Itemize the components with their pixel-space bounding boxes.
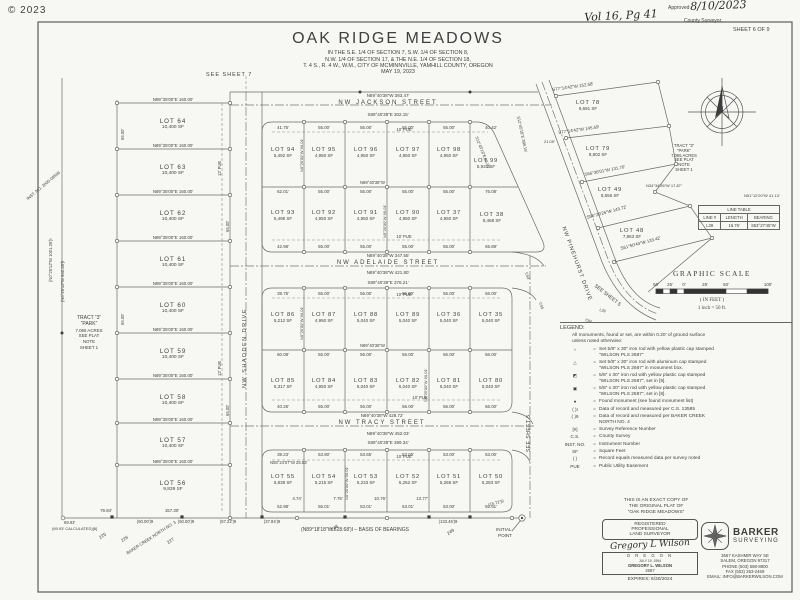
pue-label: 10′ PUE — [382, 293, 426, 298]
bearing-label: N89°35′00″E 160.00′ — [143, 143, 203, 148]
bearing-label: N89°35′00″E 160.00′ — [143, 97, 203, 102]
dim-label: 65.00′ — [226, 221, 231, 232]
street-adelaide: NW ADELAIDE STREET — [328, 260, 448, 267]
bearing-label: S89°40′38″E 376.21′ — [328, 280, 448, 285]
dim-label: 41.75′ — [261, 125, 305, 130]
lot-label: LOT 6210,400 SF — [143, 210, 203, 222]
bearing-label: N89°35′00″E 160.00′ — [143, 373, 203, 378]
street-tracy: NW TRACY STREET — [322, 420, 442, 427]
dim-label: 55.01′ — [302, 504, 346, 509]
dim-label: (50.00′)9 — [127, 520, 163, 525]
dim-label: 79.84′ — [86, 508, 126, 513]
tract-park-label: TRACT “3”“PARK” 7.065 ACRES SEE PLAT NOT… — [58, 316, 120, 351]
dim-label: (57.22′)9 — [208, 520, 248, 525]
lot-label: LOT 798,802 SF — [576, 146, 620, 157]
dim-label: 76.08′ — [469, 189, 513, 194]
exact-copy-note: THIS IS AN EXACT COPY OF THE ORIGINAL PL… — [604, 498, 708, 515]
scale-ratio: 1 inch = 50 ft. — [660, 306, 764, 312]
dim-label: 56.00′ — [469, 291, 513, 296]
dim-label: 55.00′ — [302, 291, 346, 296]
line-table-cell: 16.76′ — [720, 222, 746, 229]
title-block: OAK RIDGE MEADOWS IN THE S.E. 1/4 OF SEC… — [180, 30, 616, 75]
iron-rod-set8-icon: ▣ — [560, 386, 590, 397]
bearing-label: N34°34′26″W 17.87′ — [646, 184, 682, 189]
bearing-label: N89°35′00″E 160.00′ — [143, 281, 203, 286]
line-table-title: LINE TABLE — [699, 206, 779, 213]
dim-label: 13.77′ — [407, 496, 437, 501]
bearing-label: N89°40′38″W 347.55′ — [328, 253, 448, 258]
scale-tick: 100′ — [760, 282, 776, 287]
county-surveyor-label: County Surveyor — [684, 19, 721, 25]
dim-label: 56.00′ — [427, 404, 471, 409]
bearing-label: (N0°25′12″W 942.28′)I — [61, 261, 66, 302]
line-table-header: BEARING — [747, 214, 779, 221]
bearing-label: S89°40′38″E 302.15′ — [328, 112, 448, 117]
dim-label: 55.00′ — [302, 189, 346, 194]
lot-label: LOT 904,950 SF — [386, 210, 430, 221]
handwritten-approval-date: 8/10/2023 — [690, 0, 747, 14]
lot-label: LOT 487,863 SF — [610, 228, 654, 239]
pue-label: 12′ PUE — [218, 361, 223, 376]
lot-label: LOT 865,212 SF — [261, 312, 305, 323]
dim-label: 53.01′ — [344, 504, 388, 509]
iron-rod-aluminum-icon: △ — [560, 360, 590, 371]
dim-label: 56.00′ — [386, 404, 430, 409]
legend-item: ▣=5/8″ x 30″ iron rod with yellow plasti… — [560, 386, 792, 397]
lot-label: LOT 365,040 SF — [427, 312, 471, 323]
lot-label: LOT 6310,400 SF — [143, 164, 203, 176]
lot-label: LOT 974,950 SF — [386, 147, 430, 158]
lot-label: LOT 6410,400 SF — [143, 118, 203, 130]
bearing-label: N89°35′00″E 160.00′ — [143, 327, 203, 332]
dim-label: 56.00′ — [344, 404, 388, 409]
bearing-label: N89°40′38″W 428.72′ — [322, 413, 442, 418]
legend-item: ( )I=Data of record and measured per C.S… — [560, 407, 792, 413]
pue-label: 10′ PUE — [382, 235, 426, 240]
dim-label: 53.00′ — [427, 504, 471, 509]
lot-label: LOT 844,950 SF — [302, 378, 346, 389]
firm-block: BARKER SURVEYING 3657 KASHMIR WAY SE SAL… — [700, 521, 790, 579]
bearing-label: (N0°25′12″W 1001.26′)I — [49, 238, 54, 282]
legend-note: unless noted otherwise: — [572, 339, 792, 345]
plat-sheet: © 2023 Vol 16, Pg 41 Approved 8/10/2023 … — [0, 0, 800, 600]
legend-item: △=Set 5/8″ x 30″ iron rod with aluminum … — [560, 360, 792, 371]
tract-park-label: TRACT “3”“PARK” 7.065 ACRESSEE PLAT NOTE… — [660, 144, 708, 173]
bearing-label: N51°12′20″W 41.13′ — [744, 194, 780, 199]
dim-label: 39.23′ — [261, 452, 305, 457]
pue-label: 10′ PUE — [382, 455, 426, 460]
legend-item: SF=Square Feet — [560, 449, 792, 455]
legend-item: ○=Set 5/8″ x 30″ iron rod with yellow pl… — [560, 347, 792, 358]
legend-item: PUE=Public Utility Easement — [560, 464, 792, 470]
lot-label: LOT 874,950 SF — [302, 312, 346, 323]
bearing-label: N89°40′38″W — [360, 181, 385, 186]
lot-label: LOT 374,950 SF — [427, 210, 471, 221]
scale-tick: 25′ — [664, 282, 676, 287]
lot-label: LOT 525,252 SF — [386, 474, 430, 485]
see-sheet-7-ref: SEE SHEET 7 — [206, 72, 252, 78]
dim-label: 55.00′ — [302, 352, 346, 357]
dim-label: 65.00′ — [121, 314, 126, 325]
lot-label: LOT 388,468 SF — [470, 212, 514, 223]
approved-label: Approved — [668, 6, 689, 12]
legend-item: C.S.=County Survey — [560, 434, 792, 440]
scale-units: ( IN FEET ) — [660, 298, 764, 304]
lot-label: LOT 815,040 SF — [427, 378, 471, 389]
lot-label: LOT 855,317 SF — [261, 378, 305, 389]
street-shadden: NW SHADDEN DRIVE — [242, 308, 248, 388]
line-table-cell: S53°27′45″W — [747, 222, 779, 229]
lot-label: LOT 5810,400 SF — [143, 394, 203, 406]
dim-label: 56.00′ — [386, 352, 430, 357]
initial-point-label: POINT — [498, 533, 512, 538]
legend-item: ( )=Record equals measured data per surv… — [560, 456, 792, 462]
line-table-cell: L39 — [699, 222, 720, 229]
page-title: OAK RIDGE MEADOWS — [180, 30, 616, 48]
firm-name2: SURVEYING — [733, 538, 779, 545]
north-letter: N — [718, 105, 724, 114]
dim-label: 56.00′ — [344, 352, 388, 357]
dim-label: 21.05′ — [544, 140, 555, 145]
lot-label: LOT 515,269 SF — [427, 474, 471, 485]
bearing-label: N89°40′38″W 383.47′ — [328, 93, 448, 98]
bearing-label: N89°35′00″E 160.00′ — [143, 459, 203, 464]
iron-rod-set-icon: ○ — [560, 347, 590, 358]
copyright-note: © 2023 — [8, 5, 46, 17]
lot-label: LOT 935,498 SF — [261, 210, 305, 221]
dim-label: 65.00′ — [226, 405, 231, 416]
lot-label: LOT 5710,400 SF — [143, 437, 203, 449]
dim-label: 55.00′ — [302, 404, 346, 409]
dim-label: 10.76′ — [365, 496, 395, 501]
initial-point-label: INITIAL — [496, 527, 512, 532]
dim-label: 4.74′ — [282, 496, 312, 501]
lot-label: LOT 825,040 SF — [386, 378, 430, 389]
surveyor-stamp: REGISTERED PROFESSIONAL LAND SURVEYOR Gr… — [602, 519, 698, 583]
dim-label: 40.42′ — [469, 125, 513, 130]
dim-label: (37.84′)9 — [252, 520, 292, 525]
bearing-label: N89°35′00″E 160.00′ — [143, 189, 203, 194]
dim-label: 56.00′ — [427, 291, 471, 296]
dim-label: 7.75′ — [323, 496, 353, 501]
lot-label: LOT 5910,400 SF — [143, 348, 203, 360]
dim-label: 42.98′ — [261, 244, 305, 249]
dim-label: 55.00′ — [427, 125, 471, 130]
dim-label: 65.89′ — [469, 244, 513, 249]
dim-label: 39.75′ — [261, 291, 305, 296]
lot-label: LOT 545,215 SF — [302, 474, 346, 485]
dim-label: (69.93′ CALCULATED)[8] — [52, 527, 97, 532]
lot-label: LOT 954,950 SF — [302, 147, 346, 158]
bearing-label: N89°40′38″W 452.03′ — [328, 431, 448, 436]
found-monument-icon: ● — [560, 399, 590, 405]
pue-label: 10′ PUE — [398, 396, 442, 401]
lot-label: LOT 6110,400 SF — [143, 256, 203, 268]
dim-label: 55.00′ — [344, 189, 388, 194]
firm-name: BARKER — [733, 527, 779, 539]
dim-label: 56.00′ — [427, 352, 471, 357]
legend-item: ◩=5/8″ x 30″ iron rod with yellow plasti… — [560, 373, 792, 384]
dim-label: 55.00′ — [302, 244, 346, 249]
dim-label: (133.46′)9 — [420, 520, 476, 525]
bearing-label: N08°24′07″W 25.53′ — [270, 461, 307, 466]
lot-label: LOT 964,950 SF — [344, 147, 388, 158]
legend-item: INST. NO.=Instrument Number — [560, 442, 792, 448]
sheet-number: SHEET 6 OF 9 — [733, 27, 770, 33]
stamp-expiry: EXPIRES: 6/30/2024 — [602, 577, 698, 583]
lot-label: LOT 835,040 SF — [344, 378, 388, 389]
lot-label: LOT 355,040 SF — [469, 312, 513, 323]
lot-label: LOT 505,283 SF — [469, 474, 513, 485]
dim-label: 53.01′ — [386, 504, 430, 509]
street-jackson: NW JACKSON STREET — [328, 100, 448, 107]
line-table-header: LINE # — [699, 214, 720, 221]
scale-tick: 50′ — [650, 282, 662, 287]
dim-label: 55.00′ — [386, 244, 430, 249]
bearing-label: N89°35′00″E 160.00′ — [143, 235, 203, 240]
lot-label: LOT 984,950 SF — [427, 147, 471, 158]
lot-label: LOT 945,492 SF — [261, 147, 305, 158]
lot-label: LOT 569,839 SF — [143, 480, 203, 492]
dim-label: 56.00′ — [469, 352, 513, 357]
dim-label: 157.30′ — [150, 508, 194, 513]
dim-label: 55.00′ — [344, 244, 388, 249]
lot-label: LOT 924,950 SF — [302, 210, 346, 221]
dim-label: 40.26′ — [261, 404, 305, 409]
scale-tick: 25′ — [699, 282, 711, 287]
bearing-label: N89°35′00″E 160.00′ — [143, 417, 203, 422]
legend: LEGEND: All monuments, found or set, are… — [560, 322, 792, 469]
legend-item: [#]=Survey Reference Number — [560, 427, 792, 433]
graphic-scale-title: GRAPHIC SCALE — [660, 270, 764, 279]
legend-item: ●=Found monument (see found monument lis… — [560, 399, 792, 405]
lot-label: LOT 895,040 SF — [386, 312, 430, 323]
lot-label: LOT 914,950 SF — [344, 210, 388, 221]
see-sheet-5-ref: SEE SHEET 5 — [527, 414, 533, 452]
scale-tick: 50′ — [720, 282, 732, 287]
dim-label: 53.80′ — [302, 452, 346, 457]
line-table: LINE TABLE LINE # LENGTH BEARING L39 16.… — [698, 205, 780, 230]
lot-label: LOT 535,233 SF — [344, 474, 388, 485]
bearing-label: N89°40′38″W — [360, 344, 385, 349]
barker-compass-logo-icon — [700, 521, 730, 551]
basis-of-bearings: (N89°18′18″W 628.68′)I – BASIS OF BEARIN… — [250, 528, 460, 534]
iron-rod-set9-icon: ◩ — [560, 373, 590, 384]
legend-title: LEGEND: — [560, 325, 792, 331]
pue-label: 10′ PUE — [382, 128, 426, 133]
dim-label: 52.98′ — [261, 504, 305, 509]
lot-label: LOT 805,040 SF — [469, 378, 513, 389]
dim-label: 55.00′ — [386, 189, 430, 194]
dim-label: 55.00′ — [427, 244, 471, 249]
lot-label: LOT 555,838 SF — [261, 474, 305, 485]
dim-label: 53.00′ — [469, 452, 513, 457]
legend-item: ( )9=Data of record and measured per BAK… — [560, 414, 792, 425]
dim-label: 60.08′ — [261, 352, 305, 357]
dim-label: 53.00′ — [427, 452, 471, 457]
bearing-label: S89°40′38″E 399.34′ — [328, 440, 448, 445]
dim-label: 55.00′ — [302, 125, 346, 130]
pue-label: 12′ PUE — [218, 161, 223, 176]
lot-label: LOT 498,556 SF — [588, 187, 632, 198]
lot-label: LOT 885,040 SF — [344, 312, 388, 323]
dim-label: 62.01′ — [261, 189, 305, 194]
lot-label: LOT 6010,400 SF — [143, 302, 203, 314]
dim-label: 65.00′ — [121, 129, 126, 140]
dim-label: 56.00′ — [469, 404, 513, 409]
line-table-header: LENGTH — [720, 214, 746, 221]
scale-tick: 0′ — [678, 282, 690, 287]
lot-label: LOT 789,691 SF — [566, 100, 610, 111]
dim-label: 55.00′ — [427, 189, 471, 194]
bearing-label: N89°40′38″W 421.80′ — [328, 270, 448, 275]
